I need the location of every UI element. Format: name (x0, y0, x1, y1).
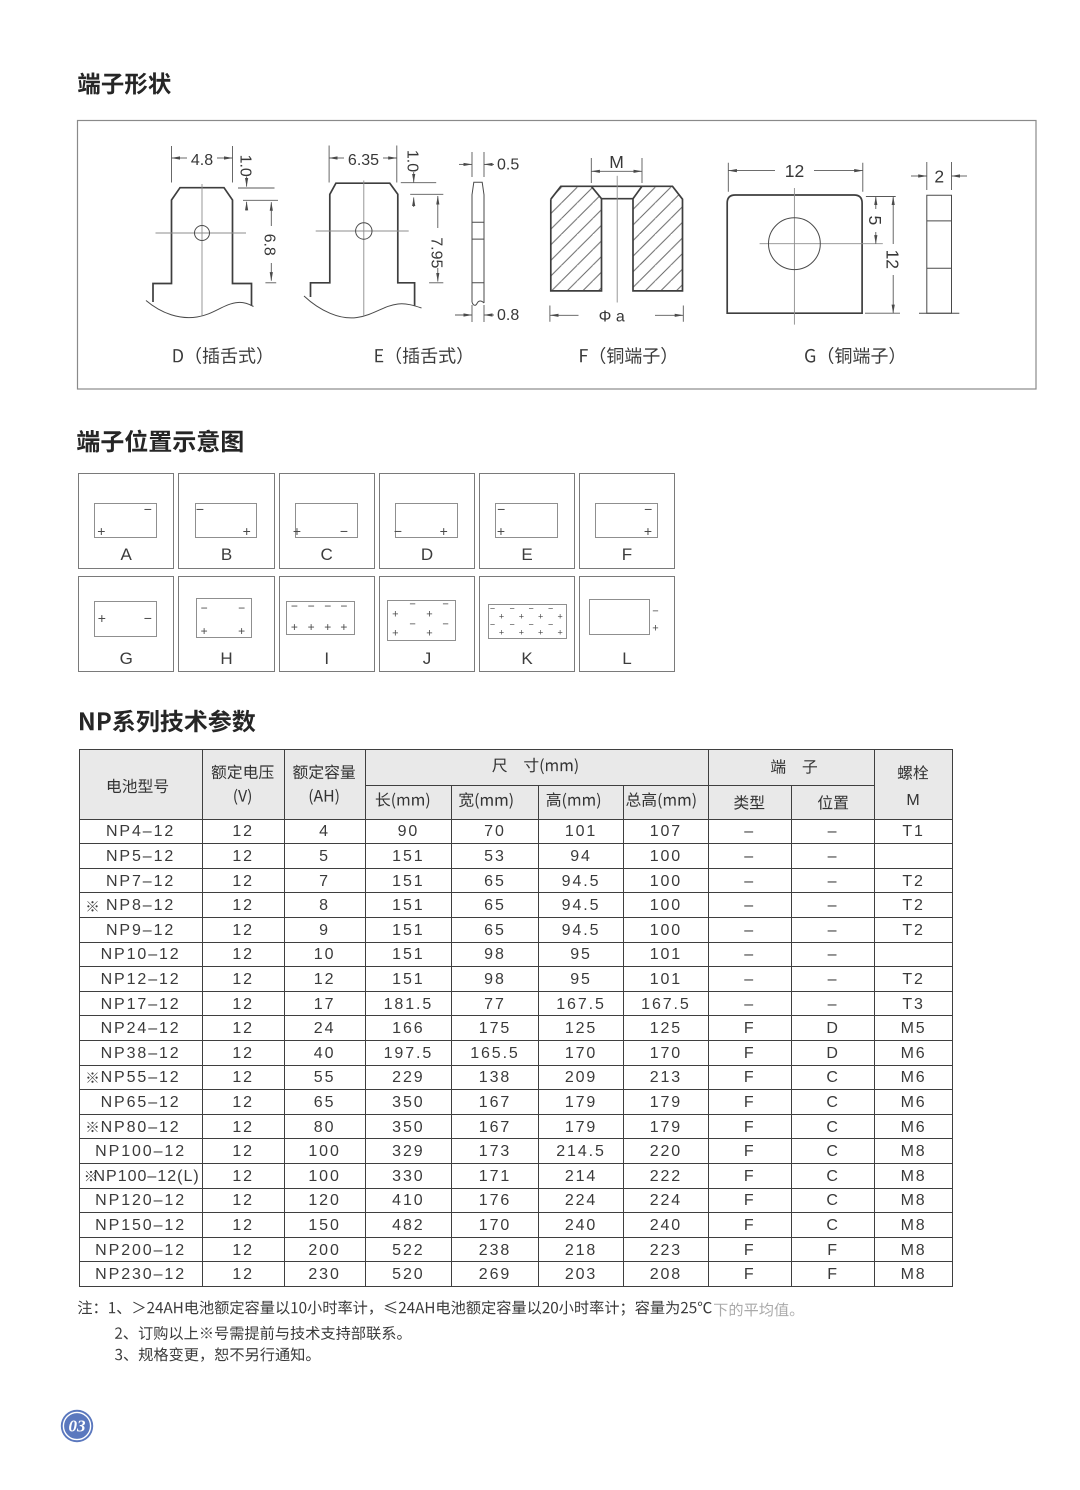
svg-text:6.8: 6.8 (261, 234, 278, 256)
svg-text:4.8: 4.8 (191, 152, 213, 169)
svg-text:12: 12 (882, 250, 902, 269)
svg-text:7.95: 7.95 (428, 237, 445, 268)
svg-text:12: 12 (785, 161, 804, 181)
svg-text:6.35: 6.35 (348, 152, 379, 169)
svg-text:1.0: 1.0 (237, 155, 254, 177)
svg-text:Φ a: Φ a (599, 308, 625, 325)
svg-text:5: 5 (865, 216, 885, 226)
svg-text:M: M (609, 152, 624, 172)
svg-text:1.0: 1.0 (404, 150, 421, 172)
svg-text:0.5: 0.5 (497, 157, 519, 174)
svg-text:2: 2 (934, 167, 944, 187)
svg-text:0.8: 0.8 (497, 307, 519, 324)
svg-text:M: M (906, 792, 919, 809)
